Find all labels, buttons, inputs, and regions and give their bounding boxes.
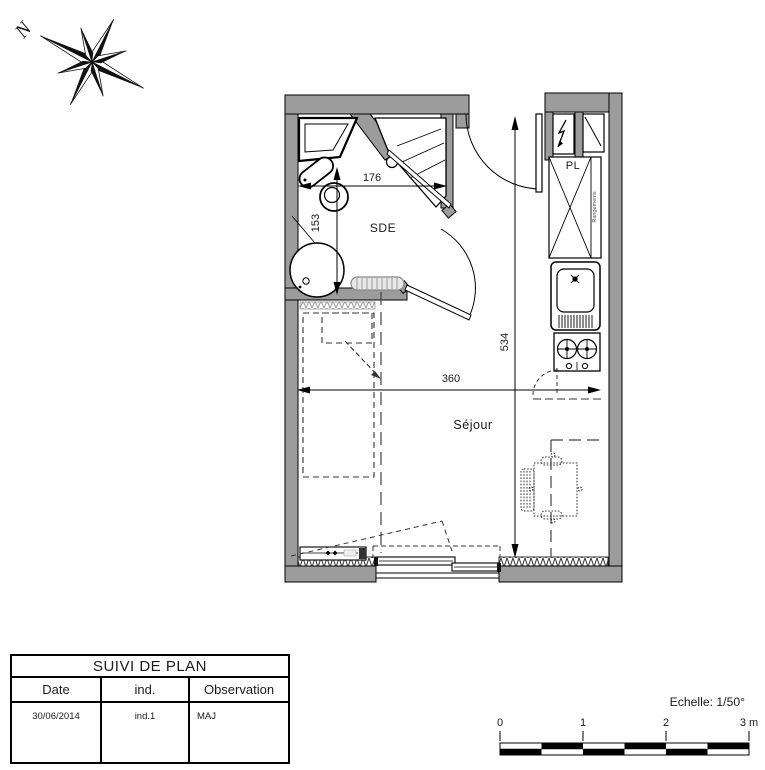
title-block-title: SUIVI DE PLAN — [12, 656, 288, 678]
entry-door-leaf — [536, 114, 542, 192]
room-label-sde: SDE — [370, 221, 396, 235]
scale-label: Echelle: 1/50° — [670, 695, 745, 709]
wall-pl-jamb — [545, 112, 553, 160]
kitchen-sink — [551, 262, 600, 330]
floor-plan-sheet: N — [0, 0, 765, 770]
wall-right — [609, 93, 622, 582]
wall-left — [285, 95, 298, 582]
svg-text:360: 360 — [442, 373, 460, 385]
kitchen-stove — [554, 333, 600, 371]
scale-tick-0: 0 — [497, 717, 503, 729]
floor-plan-drawing: N — [0, 0, 765, 650]
column-header-ind: ind. — [102, 678, 190, 701]
wall-top — [285, 95, 469, 114]
svg-text:153: 153 — [310, 214, 322, 232]
revision-ind: ind.1 — [102, 703, 190, 762]
north-label: N — [10, 17, 37, 43]
scale-segments — [500, 743, 749, 755]
closet: Rangements — [549, 157, 601, 258]
scale-tick-2: 2 — [663, 717, 669, 729]
scale-bar: Echelle: 1/50° 0 1 2 3 m — [490, 693, 765, 767]
toilet — [296, 154, 348, 211]
scale-tick-3: 3 m — [740, 717, 758, 729]
bathroom-window — [299, 118, 357, 161]
radiator — [300, 547, 366, 560]
scale-tick-1: 1 — [580, 717, 586, 729]
svg-text:176: 176 — [363, 172, 381, 184]
shelf-strip — [300, 302, 375, 309]
revision-observation: MAJ — [190, 703, 288, 762]
column-header-date: Date — [12, 678, 102, 701]
title-block-data-row: 30/06/2014 ind.1 MAJ — [12, 703, 288, 762]
room-label-sejour: Séjour — [453, 418, 492, 432]
closet-annotation: Rangements — [592, 191, 598, 222]
title-block: SUIVI DE PLAN Date ind. Observation 30/0… — [10, 654, 290, 764]
entry-door — [466, 114, 542, 192]
bathroom-door — [405, 229, 475, 320]
column-header-observation: Observation — [190, 678, 288, 701]
shower — [375, 118, 451, 208]
compass-rose: N — [10, 0, 165, 131]
wall-pl-divider — [575, 112, 583, 158]
room-label-pl: PL — [566, 160, 580, 172]
electrical-panel — [553, 114, 574, 154]
dashed-appliance — [533, 368, 603, 399]
towel-radiator — [351, 277, 404, 290]
closet-shelf — [583, 114, 604, 152]
wall-bottom-left — [285, 566, 376, 582]
bathroom-door-leaf — [405, 285, 471, 320]
dashed-bed — [303, 313, 381, 477]
title-block-header-row: Date ind. Observation — [12, 678, 288, 703]
revision-date: 30/06/2014 — [12, 703, 102, 762]
svg-text:534: 534 — [499, 333, 511, 351]
dimension-living-width: 360 — [297, 373, 601, 394]
wall-bottom-right — [499, 566, 622, 582]
